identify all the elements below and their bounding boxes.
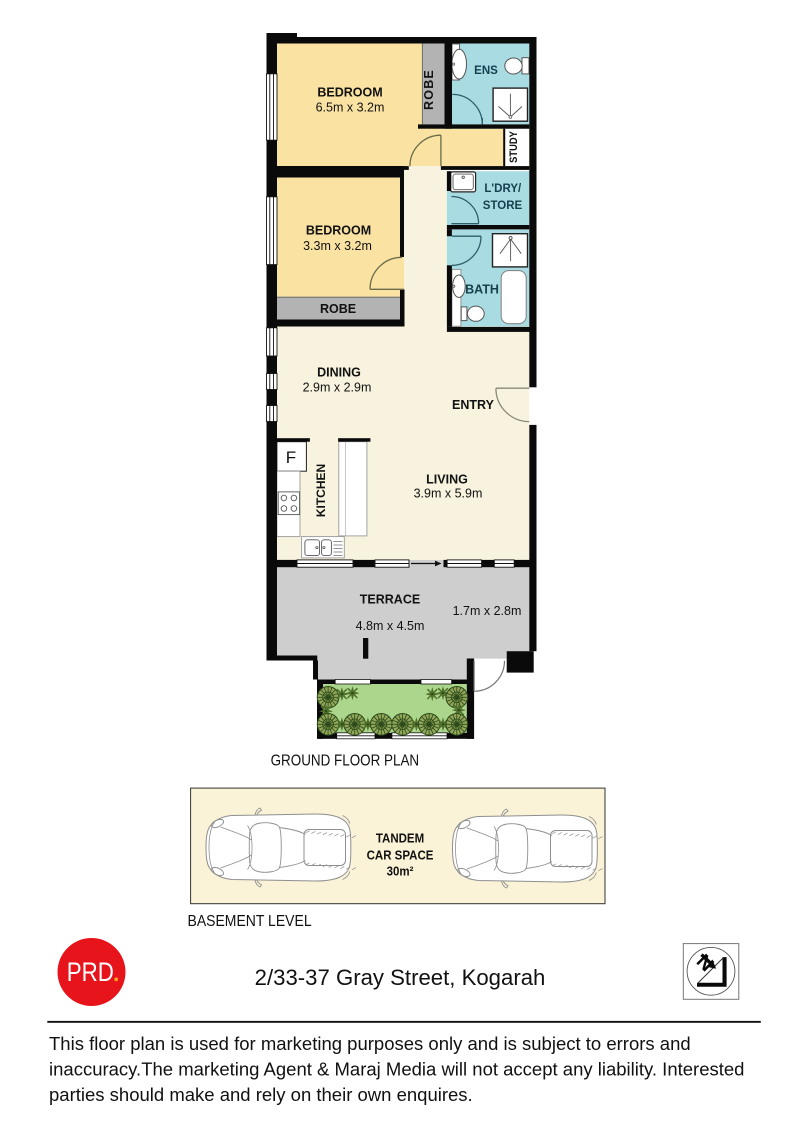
svg-text:TERRACE: TERRACE bbox=[360, 593, 420, 607]
svg-text:LIVING: LIVING bbox=[426, 473, 468, 487]
svg-text:PRD: PRD bbox=[67, 958, 114, 987]
svg-text:This floor plan is used for ma: This floor plan is used for marketing pu… bbox=[49, 1033, 691, 1054]
svg-text:TANDEM: TANDEM bbox=[376, 831, 424, 846]
svg-text:BASEMENT LEVEL: BASEMENT LEVEL bbox=[188, 912, 312, 930]
svg-text:6.5m x 3.2m: 6.5m x 3.2m bbox=[316, 101, 385, 115]
svg-text:STORE: STORE bbox=[483, 200, 523, 212]
svg-text:F: F bbox=[286, 448, 296, 467]
svg-text:L'DRY/: L'DRY/ bbox=[484, 183, 522, 195]
svg-text:CAR SPACE: CAR SPACE bbox=[367, 848, 434, 863]
svg-text:KITCHEN: KITCHEN bbox=[314, 464, 328, 517]
svg-text:3.3m x 3.2m: 3.3m x 3.2m bbox=[303, 239, 372, 253]
svg-text:2/33-37 Gray Street, Kogarah: 2/33-37 Gray Street, Kogarah bbox=[255, 965, 546, 990]
svg-text:30m²: 30m² bbox=[387, 864, 414, 879]
svg-text:ROBE: ROBE bbox=[422, 69, 436, 110]
svg-text:2.9m x 2.9m: 2.9m x 2.9m bbox=[303, 381, 372, 395]
svg-text:inaccuracy.The marketing Agent: inaccuracy.The marketing Agent & Maraj M… bbox=[49, 1059, 744, 1080]
svg-text:ENS: ENS bbox=[474, 65, 498, 77]
svg-text:ENTRY: ENTRY bbox=[452, 398, 495, 412]
svg-text:DINING: DINING bbox=[317, 366, 361, 380]
svg-text:4.8m x 4.5m: 4.8m x 4.5m bbox=[356, 619, 425, 633]
svg-text:parties should make and rely o: parties should make and rely on their ow… bbox=[49, 1084, 473, 1105]
svg-text:1.7m x 2.8m: 1.7m x 2.8m bbox=[453, 604, 522, 618]
svg-text:3.9m x 5.9m: 3.9m x 5.9m bbox=[414, 487, 483, 501]
svg-text:STUDY: STUDY bbox=[508, 131, 520, 163]
svg-text:ROBE: ROBE bbox=[320, 302, 356, 316]
svg-text:BATH: BATH bbox=[465, 282, 499, 296]
svg-text:GROUND FLOOR PLAN: GROUND FLOOR PLAN bbox=[271, 753, 420, 770]
svg-text:BEDROOM: BEDROOM bbox=[306, 224, 371, 238]
svg-text:BEDROOM: BEDROOM bbox=[317, 86, 382, 100]
